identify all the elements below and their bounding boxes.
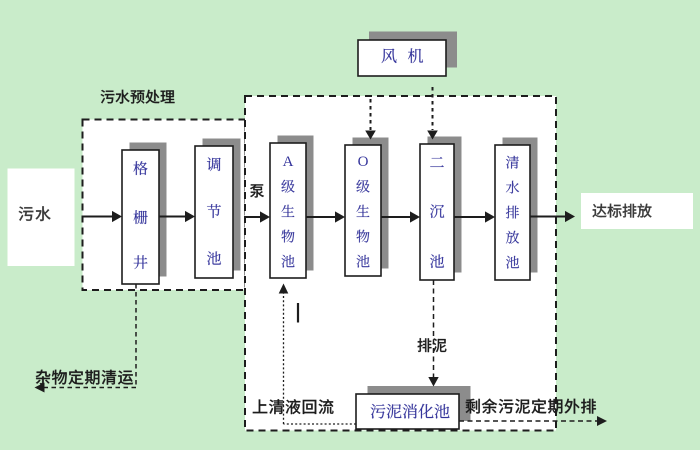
svg-text:O: O — [358, 154, 369, 170]
svg-text:A: A — [283, 154, 294, 170]
